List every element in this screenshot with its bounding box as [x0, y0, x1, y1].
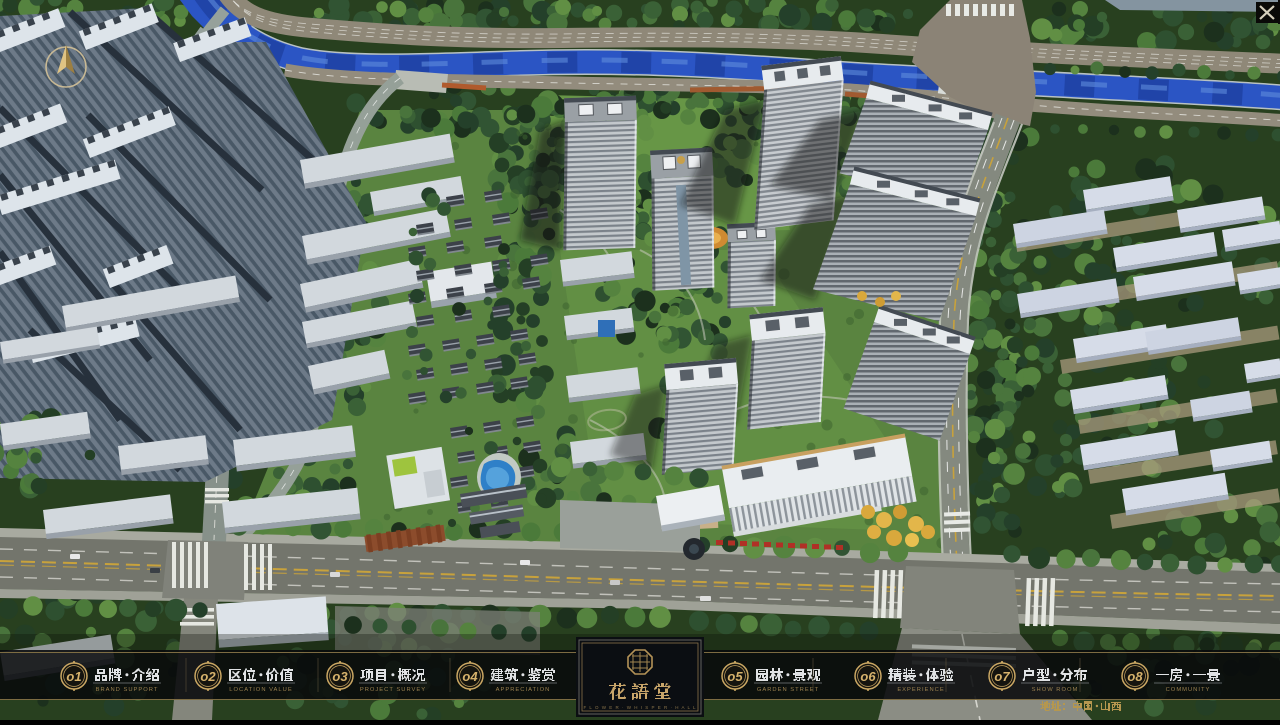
svg-text:o8: o8	[1127, 669, 1143, 684]
svg-text:LOCATION VALUE: LOCATION VALUE	[229, 687, 292, 693]
svg-text:o5: o5	[727, 669, 743, 684]
svg-text:o4: o4	[462, 669, 478, 684]
svg-text:EXPERIENCE: EXPERIENCE	[897, 687, 944, 693]
svg-text:COMMUNITY: COMMUNITY	[1166, 687, 1211, 693]
svg-text:F L O W E R · W H I S P E R ·: F L O W E R · W H I S P E R · H A L L	[583, 705, 696, 710]
svg-text:o6: o6	[860, 669, 876, 684]
svg-text:o1: o1	[66, 669, 81, 684]
svg-text:SHOW ROOM: SHOW ROOM	[1032, 687, 1079, 693]
svg-text:o3: o3	[332, 669, 348, 684]
svg-text:o2: o2	[200, 669, 216, 684]
svg-text:PROJECT SURVEY: PROJECT SURVEY	[360, 687, 426, 693]
svg-text:BRAND SUPPORT: BRAND SUPPORT	[96, 687, 159, 693]
svg-text:APPRECIATION: APPRECIATION	[496, 687, 551, 693]
svg-text:GARDEN STREET: GARDEN STREET	[757, 687, 819, 693]
svg-text:o7: o7	[994, 669, 1010, 684]
